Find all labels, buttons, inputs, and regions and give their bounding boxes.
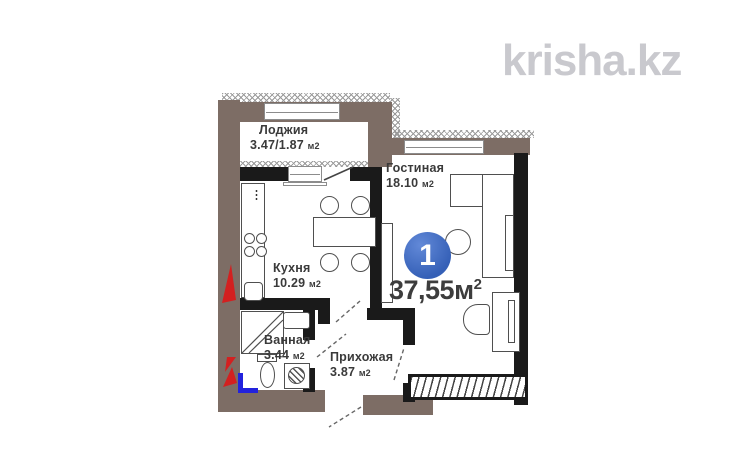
room-label-bathroom: Ванная 3.44 м2 — [264, 333, 311, 364]
kitchen-door-swing — [336, 301, 360, 322]
room-count: 1 — [419, 239, 436, 273]
room-label-kitchen: Кухня 10.29 м2 — [273, 261, 321, 292]
room-label-hallway: Прихожая 3.87 м2 — [330, 350, 393, 381]
room-label-loggia: Лоджия 3.47/1.87 м2 — [250, 123, 320, 154]
total-area: 37,55м2 — [389, 275, 481, 306]
loggia-door-swing — [324, 167, 353, 180]
entrance-door-swing — [329, 407, 361, 427]
fire-ladder-icon — [222, 264, 236, 303]
room-label-living: Гостиная 18.10 м2 — [386, 161, 444, 192]
living-door-swing — [394, 348, 404, 380]
fire-ladder-icon — [223, 367, 237, 387]
krisha-watermark: krisha.kz — [502, 36, 681, 86]
room-count-badge: 1 — [404, 232, 451, 279]
fire-ladder-icon — [225, 357, 236, 372]
